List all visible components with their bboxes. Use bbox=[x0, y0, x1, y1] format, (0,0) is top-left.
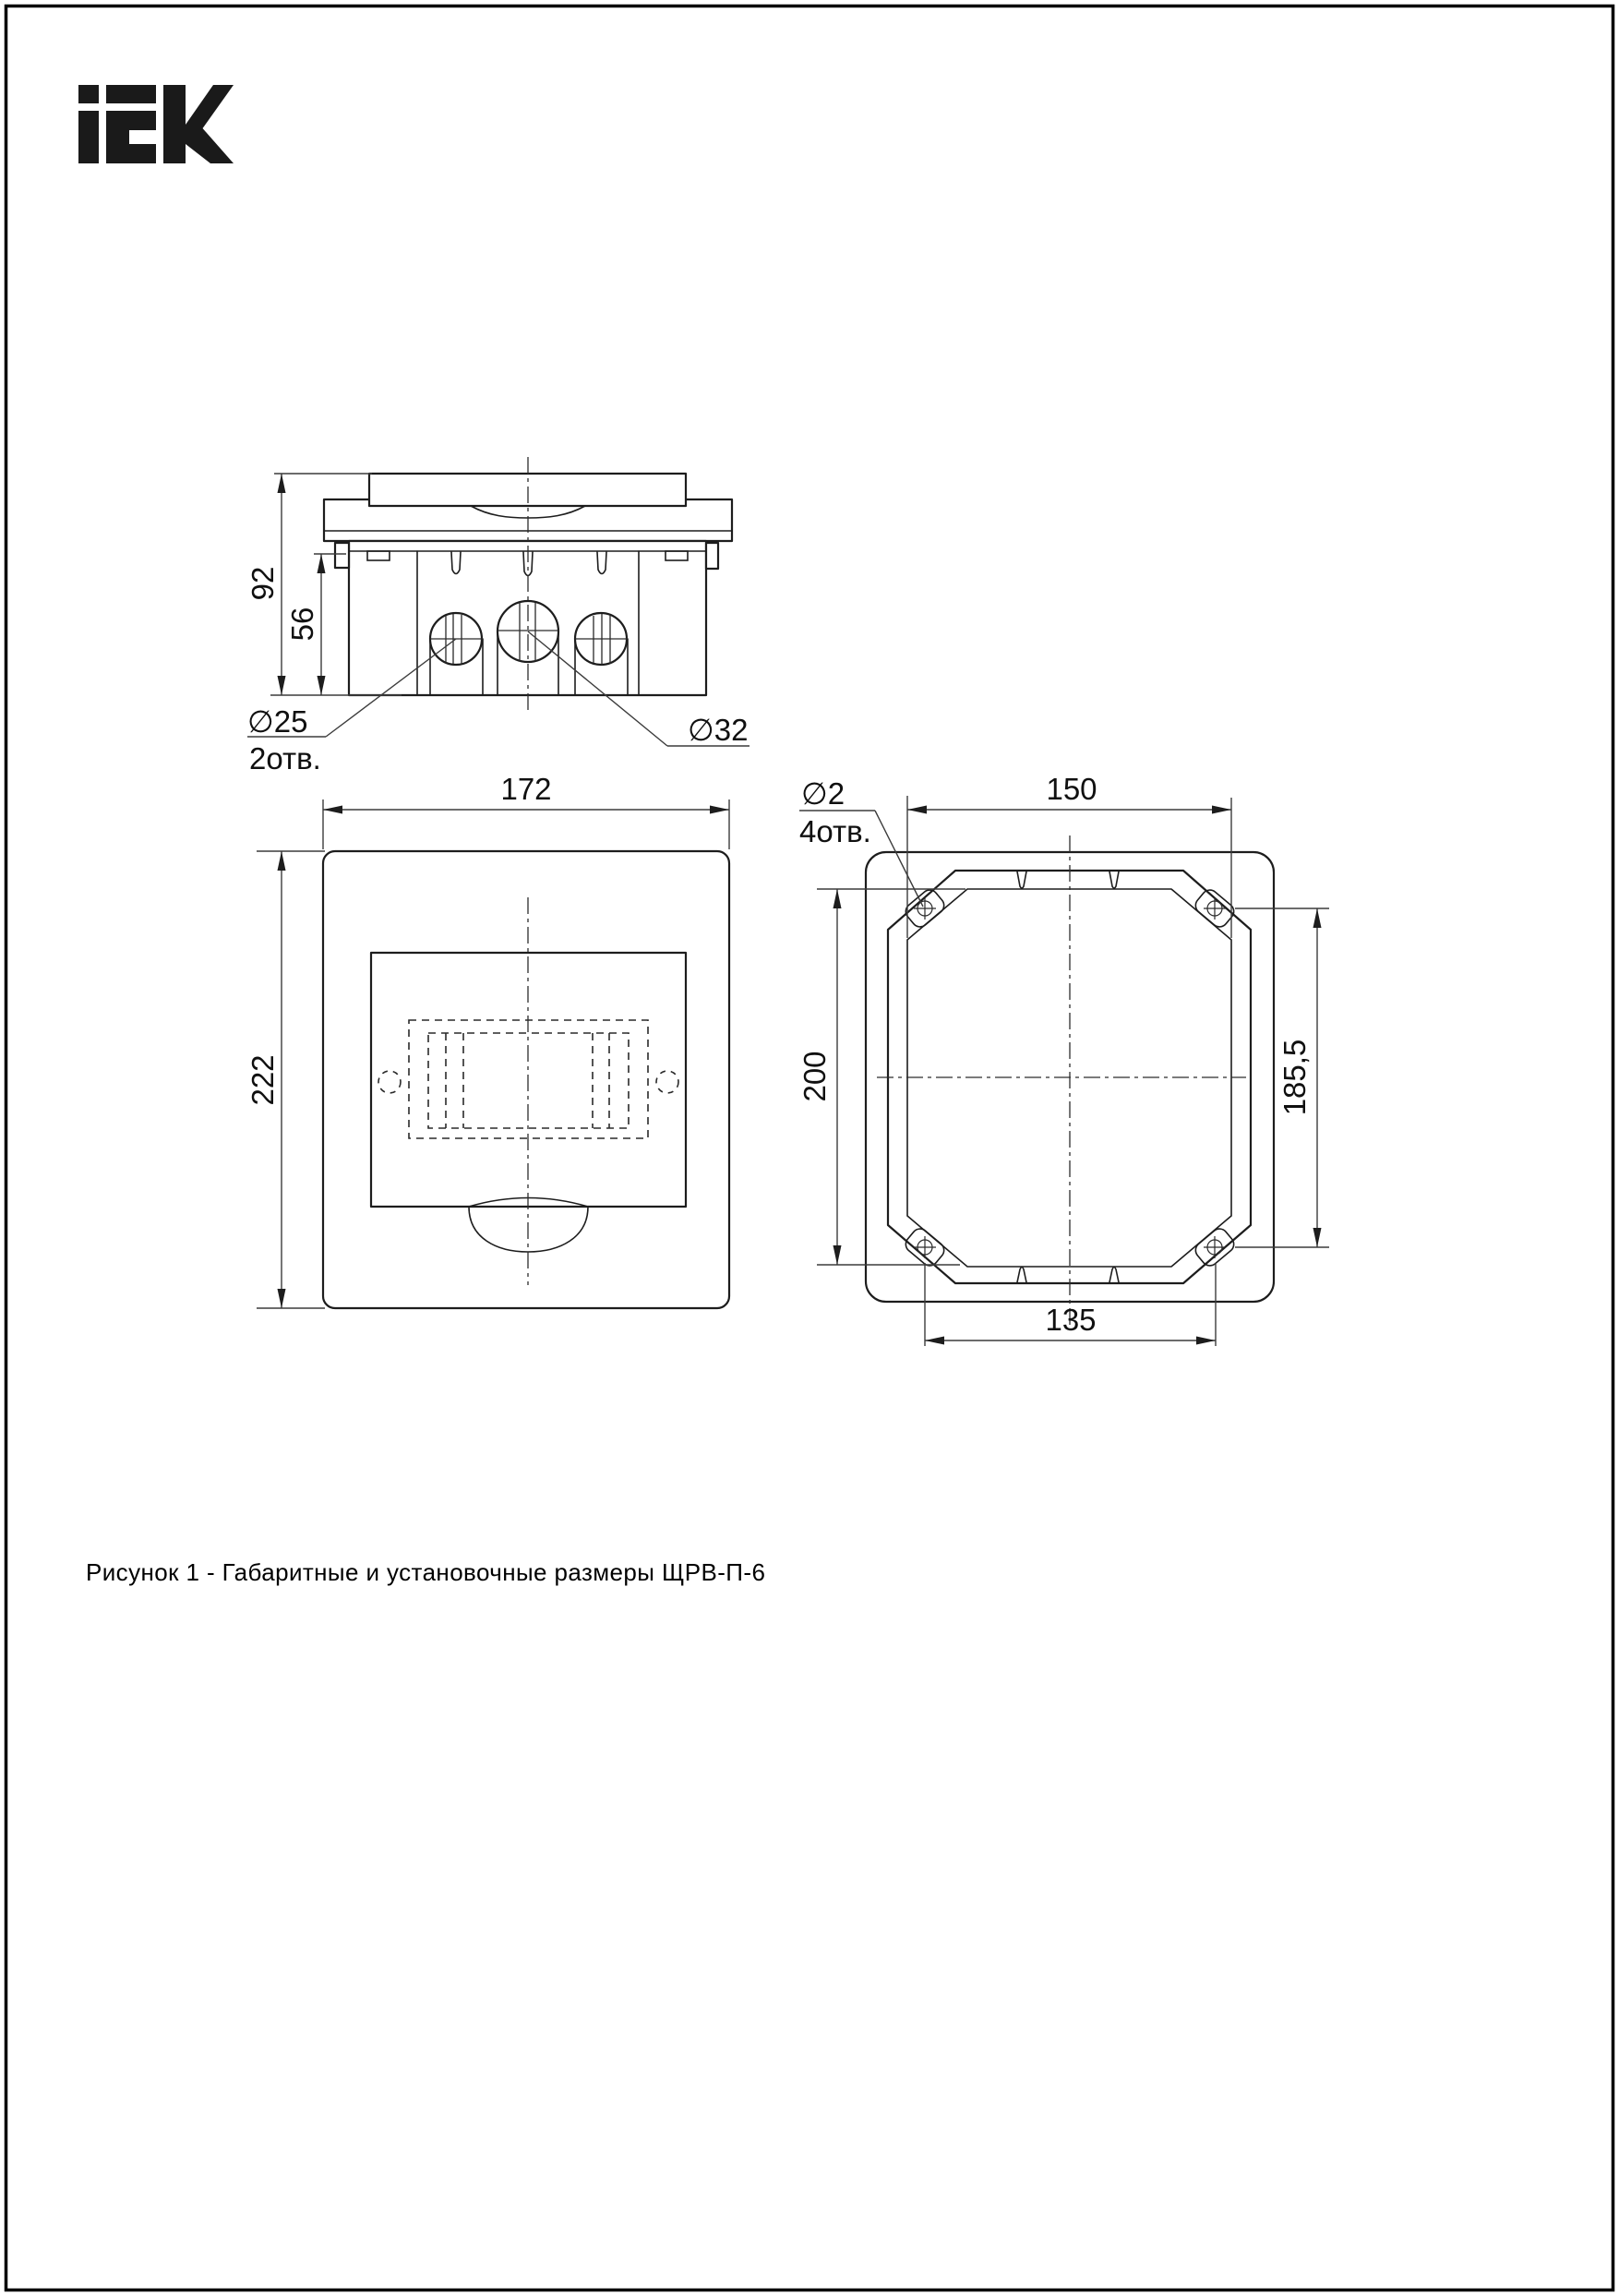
iek-logo bbox=[78, 85, 234, 163]
page-border bbox=[6, 6, 1613, 2290]
side-clip-left bbox=[335, 543, 349, 568]
callout-d25-qty: 2отв. bbox=[249, 741, 321, 775]
front-frame bbox=[323, 851, 729, 1308]
dim-150: 150 bbox=[907, 772, 1231, 938]
side-clip-right bbox=[706, 543, 718, 569]
callout-d2-qty: 4отв. bbox=[799, 814, 871, 848]
dim-92-label: 92 bbox=[246, 567, 280, 601]
callout-d25-label: ∅25 bbox=[247, 704, 307, 739]
drawing-caption: Рисунок 1 - Габаритные и установочные ра… bbox=[86, 1558, 765, 1586]
callout-d2: ∅2 4отв. bbox=[799, 776, 923, 907]
logo-k-stem bbox=[163, 85, 186, 163]
dim-200-label: 200 bbox=[798, 1051, 832, 1101]
dim-222: 222 bbox=[246, 851, 325, 1308]
logo-i-dot bbox=[78, 85, 99, 103]
dim-172: 172 bbox=[323, 772, 729, 849]
dim-185-5: 185,5 bbox=[1235, 908, 1329, 1247]
logo-e-mid bbox=[129, 111, 156, 130]
dim-135-label: 135 bbox=[1045, 1303, 1096, 1337]
logo-e-stem bbox=[106, 111, 129, 163]
dim-172-label: 172 bbox=[500, 772, 551, 806]
logo-k-lower-arm bbox=[186, 125, 234, 163]
drawing-page: 92 56 ∅25 2отв. ∅32 bbox=[0, 0, 1619, 2296]
dim-56-label: 56 bbox=[285, 607, 319, 642]
front-view: 172 222 bbox=[246, 772, 729, 1308]
side-view: 92 56 ∅25 2отв. ∅32 bbox=[246, 457, 750, 775]
dim-222-label: 222 bbox=[246, 1054, 280, 1105]
dim-185-5-label: 185,5 bbox=[1277, 1040, 1312, 1116]
rear-view: ∅2 4отв. 150 200 bbox=[798, 772, 1329, 1346]
dim-56: 56 bbox=[285, 554, 346, 695]
logo-e-bottom bbox=[129, 144, 156, 163]
logo-e-top bbox=[106, 85, 156, 103]
logo-k-upper-arm bbox=[186, 85, 234, 133]
callout-d2-label: ∅2 bbox=[801, 776, 845, 811]
logo-i-stem bbox=[78, 111, 99, 163]
dim-135: 135 bbox=[925, 1263, 1216, 1346]
callout-d32-label: ∅32 bbox=[688, 713, 748, 747]
dim-150-label: 150 bbox=[1046, 772, 1097, 806]
